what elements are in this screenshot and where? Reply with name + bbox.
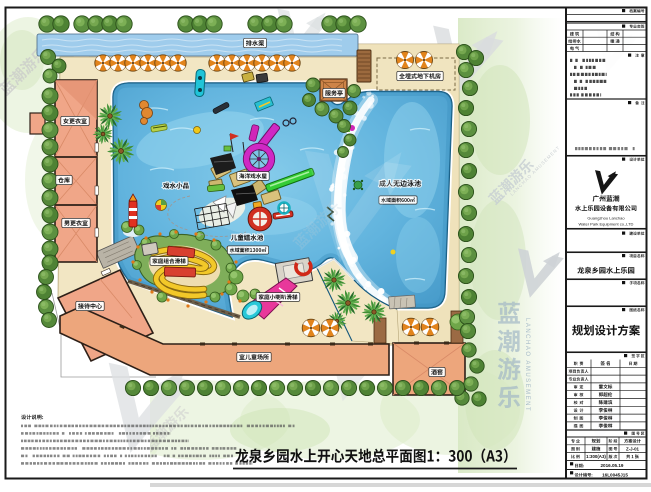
svg-text:Guangzhou Lanchao: Guangzhou Lanchao [587,216,625,221]
svg-text:LANCHAO AMUSEMENT: LANCHAO AMUSEMENT [524,318,530,412]
svg-text:2016.05.19: 2016.05.19 [601,463,624,468]
svg-text:16L0045J15: 16L0045J15 [602,472,628,477]
svg-text:1:300(A3): 1:300(A3) [586,454,606,459]
svg-text:Z-J-01: Z-J-01 [626,446,639,451]
svg-text:Water Park Equipment co.,LTD: Water Park Equipment co.,LTD [579,222,634,227]
